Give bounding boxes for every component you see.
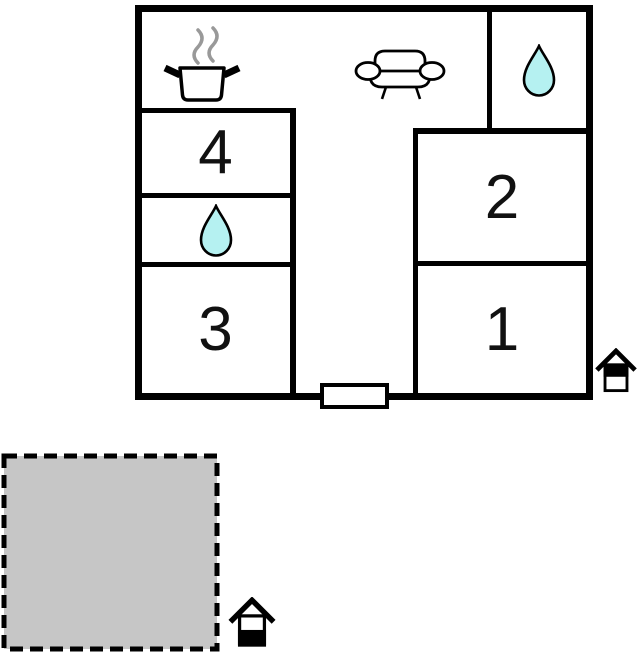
sofa-icon	[353, 45, 447, 101]
room-4-label: 4	[198, 122, 232, 184]
room-1-label: 1	[485, 299, 519, 361]
room-2: 2	[418, 134, 586, 261]
water-drop-icon-left	[141, 198, 290, 262]
floorplan-canvas: 4 3 2 1	[0, 0, 639, 652]
water-drop-icon-top-right	[492, 12, 586, 128]
room-4: 4	[141, 113, 290, 192]
room-2-label: 2	[485, 167, 519, 229]
wall-left-column-vertical	[290, 108, 296, 395]
cooking-pot-steam-icon	[160, 25, 244, 103]
room-1: 1	[418, 266, 586, 393]
room-3: 3	[141, 267, 290, 393]
entrance-door	[320, 383, 389, 409]
entrance-house-icon-right	[595, 348, 637, 396]
entrance-house-icon-bottom	[228, 597, 276, 651]
terrace	[0, 451, 222, 652]
room-3-label: 3	[198, 299, 232, 361]
